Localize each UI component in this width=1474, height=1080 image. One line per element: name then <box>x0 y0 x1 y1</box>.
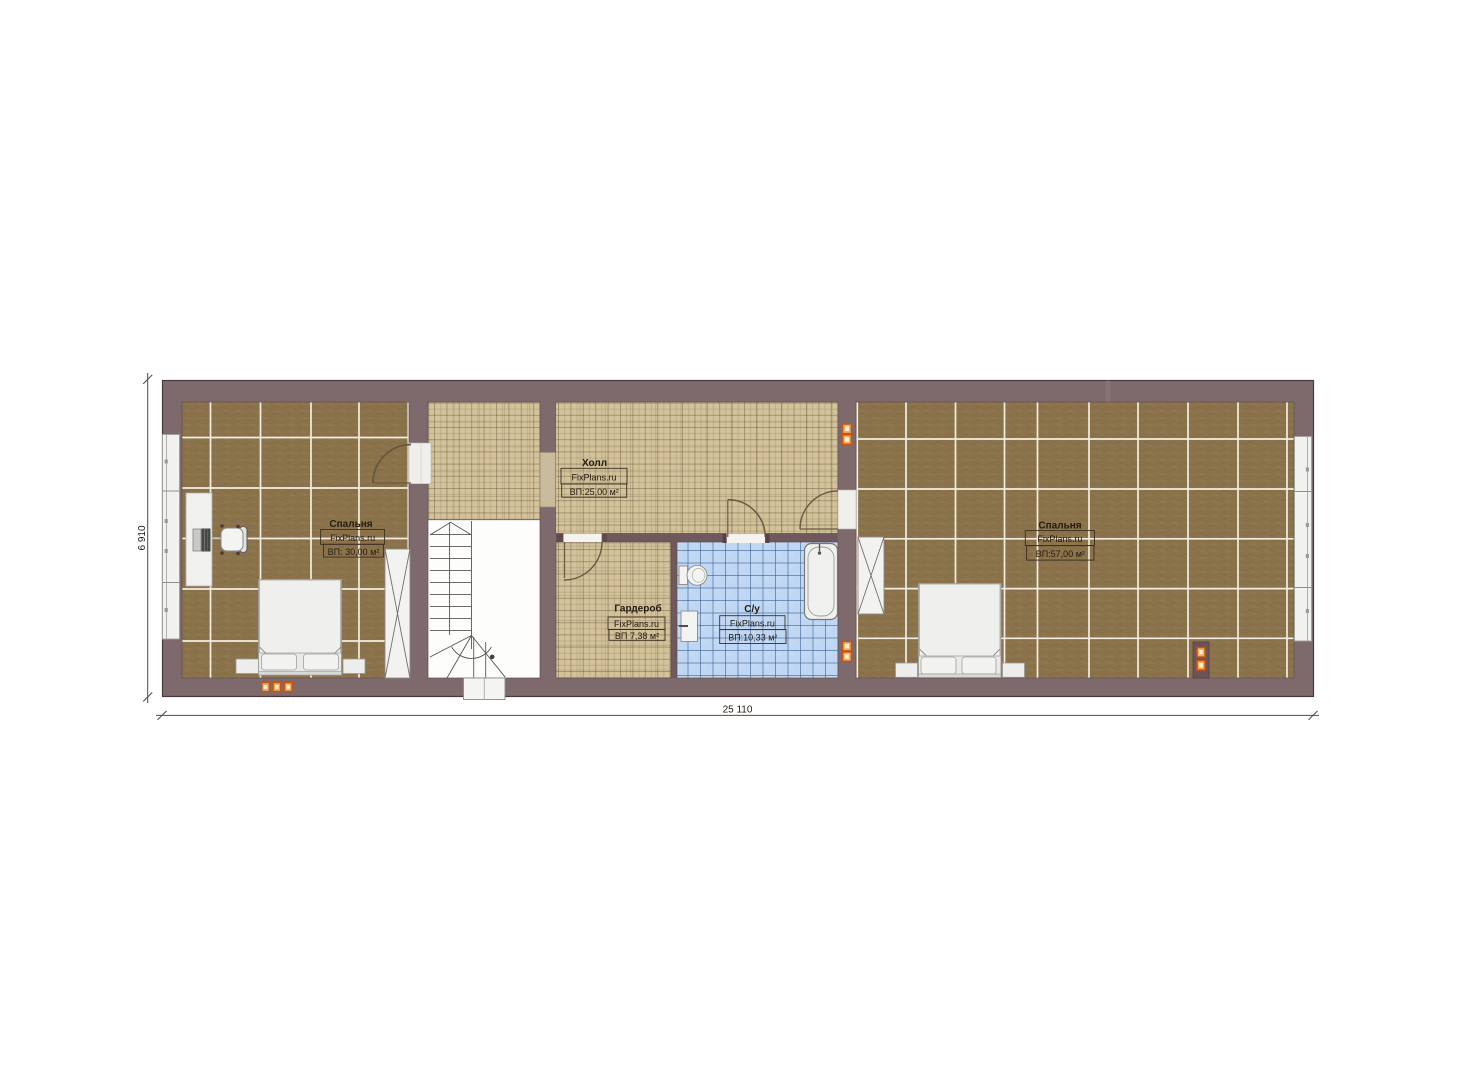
svg-text:Спальня: Спальня <box>1038 521 1081 532</box>
svg-text:25 110: 25 110 <box>723 704 753 715</box>
svg-text:FixPlans.ru: FixPlans.ru <box>614 619 659 629</box>
svg-text:FixPlans.ru: FixPlans.ru <box>330 533 375 543</box>
svg-text:FixPlans.ru: FixPlans.ru <box>1037 534 1082 544</box>
svg-text:ВП:57,00 м²: ВП:57,00 м² <box>1036 549 1085 559</box>
svg-text:ВП 7,38 м²: ВП 7,38 м² <box>615 631 659 641</box>
svg-text:С/у: С/у <box>744 604 760 615</box>
svg-text:ВП:25,00 м²: ВП:25,00 м² <box>570 487 619 497</box>
svg-text:Холл: Холл <box>582 458 607 469</box>
svg-text:ВП:10,33 м²: ВП:10,33 м² <box>728 632 777 642</box>
svg-text:Спальня: Спальня <box>329 519 372 530</box>
svg-text:Гардероб: Гардероб <box>614 603 661 615</box>
svg-text:ВП: 30,00 м²: ВП: 30,00 м² <box>328 547 380 557</box>
svg-text:FixPlans.ru: FixPlans.ru <box>730 618 775 628</box>
svg-text:FixPlans.ru: FixPlans.ru <box>571 473 616 483</box>
svg-text:6 910: 6 910 <box>137 525 148 550</box>
